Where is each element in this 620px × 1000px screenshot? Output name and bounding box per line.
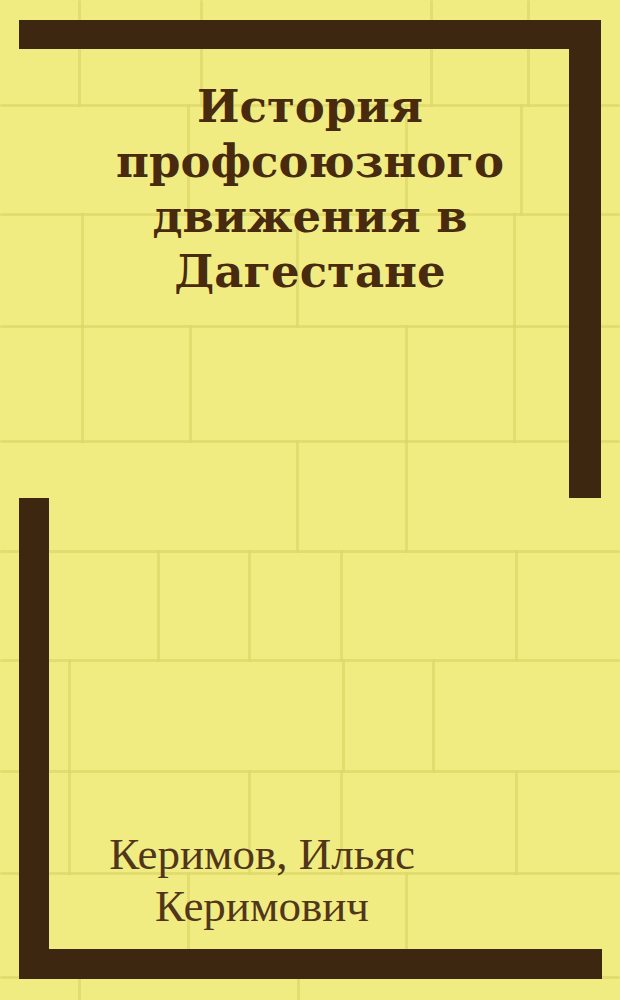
author-name: Керимов, Ильяс Керимович	[0, 828, 572, 932]
mortar-line-horizontal	[0, 550, 620, 553]
title-line-3: движения в	[0, 189, 620, 244]
title-line-1: История	[0, 79, 620, 134]
mortar-line-horizontal	[0, 659, 620, 662]
frame-bottom-bar	[19, 949, 602, 979]
mortar-line-vertical	[189, 325, 192, 443]
mortar-line-vertical	[432, 659, 435, 773]
mortar-line-horizontal	[0, 440, 620, 443]
mortar-line-vertical	[342, 659, 345, 773]
mortar-line-vertical	[297, 976, 300, 1000]
book-cover: История профсоюзного движения в Дагестан…	[0, 0, 620, 1000]
mortar-line-vertical	[68, 659, 71, 773]
author-line-2: Керимович	[0, 880, 572, 932]
title-line-2: профсоюзного	[0, 134, 620, 189]
mortar-line-horizontal	[0, 325, 620, 328]
mortar-line-vertical	[405, 440, 408, 553]
mortar-line-vertical	[78, 976, 81, 1000]
title-line-4: Дагестане	[0, 244, 620, 299]
mortar-line-vertical	[81, 325, 84, 443]
frame-top-bar	[19, 20, 601, 49]
mortar-line-vertical	[248, 550, 251, 662]
mortar-line-horizontal	[0, 770, 620, 773]
mortar-line-vertical	[157, 550, 160, 662]
mortar-line-vertical	[405, 325, 408, 443]
mortar-line-vertical	[340, 550, 343, 662]
book-title: История профсоюзного движения в Дагестан…	[0, 79, 620, 299]
mortar-line-vertical	[513, 325, 516, 443]
author-line-1: Керимов, Ильяс	[0, 828, 572, 880]
mortar-line-vertical	[515, 550, 518, 662]
mortar-line-vertical	[296, 440, 299, 553]
